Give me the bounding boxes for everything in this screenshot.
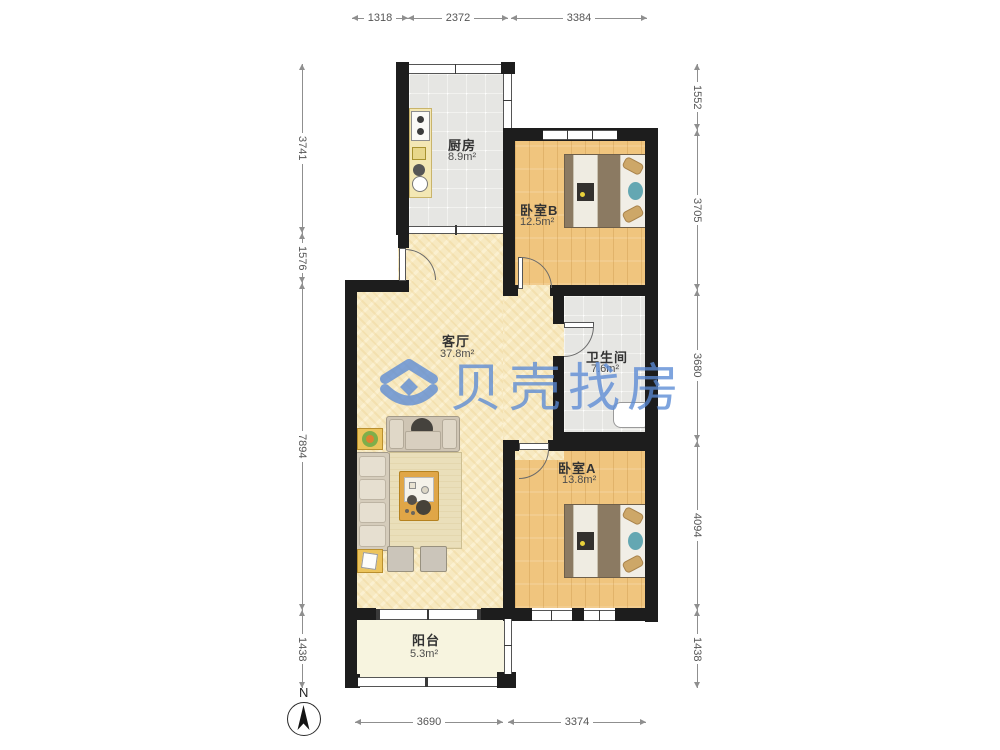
balcony-sliding-door [376, 609, 481, 620]
wall-entry-upper [398, 233, 409, 248]
wall-bedroom-b-left [503, 136, 515, 287]
dim-value: 4094 [691, 510, 703, 540]
compass-needle-icon [288, 703, 319, 734]
dim-value: 7894 [296, 431, 308, 461]
cutting-board-icon [412, 147, 426, 160]
stool-2 [420, 546, 447, 572]
dim-value: 1576 [296, 243, 308, 273]
sink-icon [412, 176, 428, 192]
floorplan-canvas: 厨房 8.9m² 卧室B 12.5m² 客厅 37.8m² 卫生间 7.6m² … [0, 0, 1000, 750]
bed-b-tv-light [580, 192, 585, 197]
dim-left-7894: 7894 [295, 283, 309, 610]
dot-icon-2 [411, 511, 415, 515]
kitchen-pass-window [409, 226, 503, 234]
wall-kitchen-left [396, 62, 409, 235]
teapot-icon [416, 500, 431, 515]
bedroom-a-bottom-window-1 [532, 610, 572, 621]
tray-item-2 [421, 486, 429, 494]
burner-icon-1 [417, 116, 424, 123]
balcony-label: 阳台 [412, 630, 440, 649]
bedroom-b-top-window [543, 130, 617, 140]
stool-1 [387, 546, 414, 572]
dim-top-2372: 2372 [408, 11, 508, 25]
wall-bedroom-a-bottom-3 [615, 608, 658, 621]
bed-a-lamp-icon [628, 532, 643, 550]
compass [287, 702, 321, 736]
dim-value: 1438 [296, 634, 308, 664]
wall-kitchen-top-right-post [501, 62, 515, 74]
dim-top-1318: 1318 [352, 11, 408, 25]
compass-north-label: N [299, 685, 308, 700]
sofa-left-cushion-3 [359, 502, 386, 523]
sofa-left-cushion-1 [359, 456, 386, 477]
kitchen-right-window [503, 74, 512, 128]
dim-value: 1438 [691, 634, 703, 664]
burner-icon-2 [417, 128, 424, 135]
dim-right-1438: 1438 [690, 610, 704, 688]
wall-bedroom-a-top-right [548, 440, 658, 451]
kitchen-area: 8.9m² [448, 151, 476, 163]
dim-left-3741: 3741 [295, 64, 309, 233]
dim-value: 2372 [442, 11, 474, 25]
kitchen-top-window [409, 64, 501, 74]
plant-flower-icon [366, 435, 374, 443]
dim-top-3384: 3384 [511, 11, 647, 25]
watermark-text: 贝壳找房 [450, 346, 686, 421]
dim-left-1576: 1576 [295, 233, 309, 283]
balcony-bottom-railing [358, 677, 497, 687]
sofa-left-cushion-2 [359, 479, 386, 500]
sofa-top-cushion-right [442, 419, 457, 449]
wall-bedroom-b-bottom-left [503, 285, 518, 296]
wall-bedroom-a-bottom-2 [572, 608, 584, 621]
bedroom-b-area: 12.5m² [520, 216, 554, 228]
bed-b-lamp-icon [628, 182, 643, 200]
bed-a-tv-light [580, 541, 585, 546]
balcony-area: 5.3m² [410, 648, 438, 660]
dim-value: 3374 [561, 715, 593, 729]
sofa-top-cushion-left [389, 419, 404, 449]
dim-right-1552: 1552 [690, 64, 704, 130]
faucet-icon [413, 164, 425, 176]
watermark: 贝壳找房 [376, 346, 686, 421]
book-icon [361, 552, 378, 570]
wall-living-left [345, 280, 357, 620]
dim-value: 1318 [364, 11, 396, 25]
bedroom-a-bottom-window-2 [584, 610, 615, 621]
wall-bathroom-left-upper [553, 296, 564, 324]
dim-value: 3690 [413, 715, 445, 729]
wall-bedroom-a-left [503, 440, 515, 621]
sofa-top-seat [405, 431, 441, 450]
dim-bottom-3374: 3374 [508, 715, 646, 729]
cup-icon [407, 495, 417, 505]
tray-item-1 [409, 482, 416, 489]
dim-right-3705: 3705 [690, 130, 704, 290]
dim-value: 1552 [691, 82, 703, 112]
dim-bottom-3690: 3690 [355, 715, 503, 729]
wall-bedroom-b-bottom-right [550, 285, 658, 296]
dot-icon-1 [405, 509, 409, 513]
dim-value: 3384 [563, 11, 595, 25]
balcony-right-railing [504, 619, 512, 674]
dim-value: 3741 [296, 133, 308, 163]
dim-right-3680: 3680 [690, 290, 704, 441]
beike-logo-icon [376, 356, 442, 412]
dim-right-4094: 4094 [690, 441, 704, 610]
bedroom-a-area: 13.8m² [562, 474, 596, 486]
dim-value: 3705 [691, 195, 703, 225]
dim-value: 3680 [691, 350, 703, 380]
sofa-left-cushion-4 [359, 525, 386, 547]
balcony-post-bottom-right [497, 672, 516, 688]
dim-left-1438: 1438 [295, 610, 309, 688]
